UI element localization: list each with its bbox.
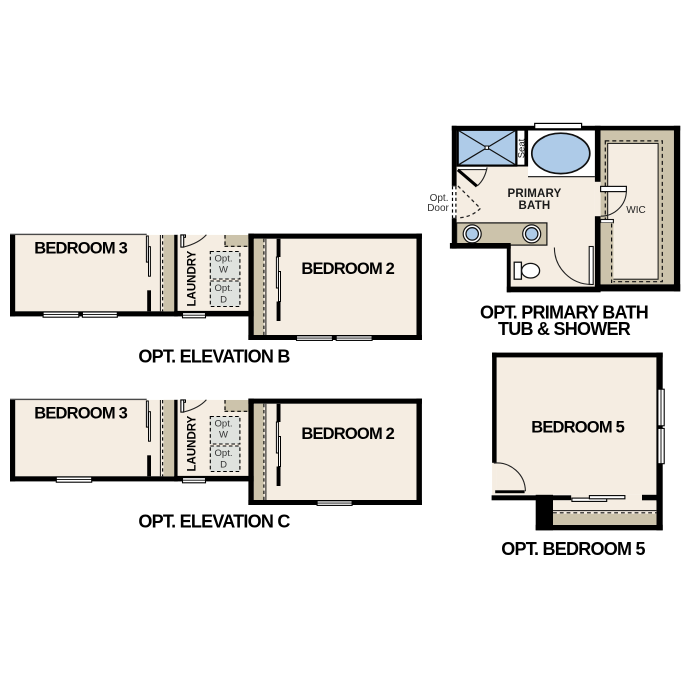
svg-text:D: D	[220, 459, 227, 470]
svg-text:BATH: BATH	[519, 200, 551, 212]
svg-text:Opt.: Opt.	[215, 283, 233, 294]
svg-text:BEDROOM 2: BEDROOM 2	[301, 425, 394, 443]
svg-text:Opt.: Opt.	[215, 418, 233, 429]
svg-text:WIC: WIC	[626, 205, 645, 216]
svg-text:D: D	[220, 294, 227, 305]
svg-text:LAUNDRY: LAUNDRY	[186, 250, 198, 306]
svg-text:Opt.: Opt.	[215, 448, 233, 459]
svg-text:PRIMARY: PRIMARY	[507, 188, 561, 200]
svg-text:BEDROOM 3: BEDROOM 3	[34, 404, 127, 422]
svg-text:Door: Door	[427, 203, 449, 214]
svg-text:LAUNDRY: LAUNDRY	[186, 415, 198, 471]
svg-text:BEDROOM 5: BEDROOM 5	[531, 419, 624, 437]
svg-text:OPT. ELEVATION C: OPT. ELEVATION C	[138, 512, 290, 532]
svg-text:OPT. BEDROOM 5: OPT. BEDROOM 5	[501, 539, 645, 559]
svg-text:BEDROOM 3: BEDROOM 3	[34, 239, 127, 257]
svg-text:TUB & SHOWER: TUB & SHOWER	[498, 319, 631, 339]
svg-text:OPT. ELEVATION B: OPT. ELEVATION B	[138, 347, 290, 367]
svg-text:Opt.: Opt.	[215, 253, 233, 264]
svg-text:BEDROOM 2: BEDROOM 2	[301, 260, 394, 278]
svg-text:W: W	[219, 265, 228, 276]
svg-text:W: W	[219, 430, 228, 441]
